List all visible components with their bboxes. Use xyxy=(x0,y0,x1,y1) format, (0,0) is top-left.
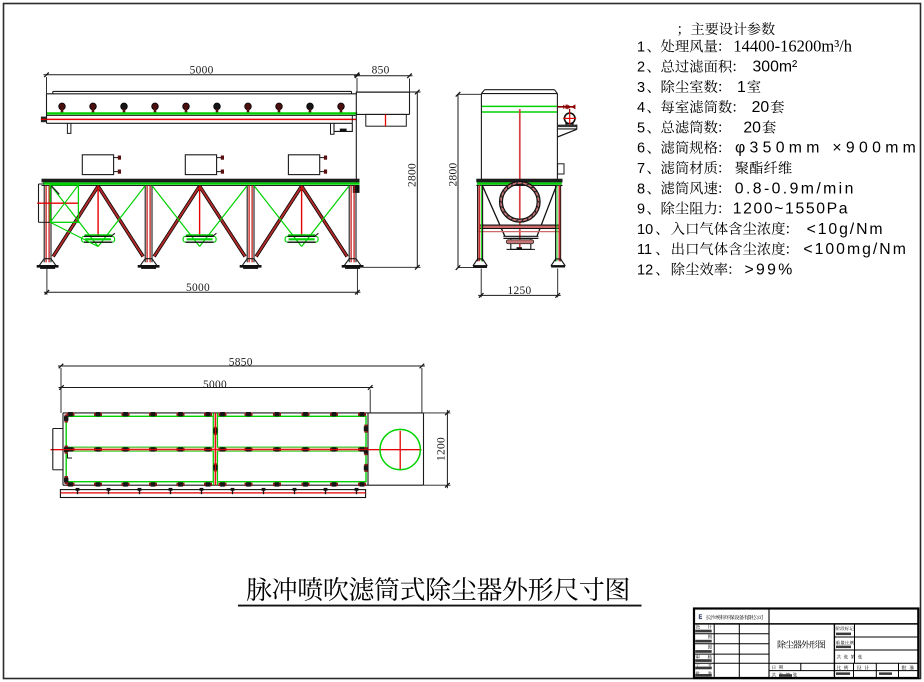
svg-text:<100mg/Nm: <100mg/Nm xyxy=(803,241,907,258)
svg-text:5000: 5000 xyxy=(190,65,214,77)
svg-text:20: 20 xyxy=(743,119,761,136)
svg-text:5000: 5000 xyxy=(186,282,210,294)
svg-text:6: 6 xyxy=(637,141,645,157)
svg-text:2: 2 xyxy=(637,60,645,76)
svg-text:3: 3 xyxy=(637,80,645,96)
svg-text:>99%: >99% xyxy=(745,261,795,278)
svg-text:1200: 1200 xyxy=(435,437,447,461)
svg-text:8: 8 xyxy=(637,181,645,197)
svg-text:φ350mm ×900mm: φ350mm ×900mm xyxy=(735,140,920,157)
svg-text:1: 1 xyxy=(737,79,746,96)
svg-text:5: 5 xyxy=(637,120,645,136)
svg-text:12: 12 xyxy=(637,262,653,278)
svg-text:1: 1 xyxy=(637,39,645,55)
svg-text:850: 850 xyxy=(372,64,390,76)
svg-text:7: 7 xyxy=(637,161,645,177)
svg-text:9: 9 xyxy=(637,202,645,218)
svg-text:11: 11 xyxy=(637,242,652,258)
svg-text:300m²: 300m² xyxy=(753,59,798,76)
svg-text:20: 20 xyxy=(752,99,770,116)
svg-text:4: 4 xyxy=(637,100,645,116)
svg-text:14400-16200m³/h: 14400-16200m³/h xyxy=(733,36,852,55)
svg-text:1200~1550Pa: 1200~1550Pa xyxy=(733,201,849,218)
svg-text:2800: 2800 xyxy=(406,163,418,187)
svg-text:5850: 5850 xyxy=(229,356,253,368)
svg-text:<10g/Nm: <10g/Nm xyxy=(807,221,885,238)
svg-text:1250: 1250 xyxy=(508,285,532,297)
svg-text:0.8-0.9m/min: 0.8-0.9m/min xyxy=(735,180,856,197)
svg-text:10: 10 xyxy=(637,222,653,238)
svg-text:5000: 5000 xyxy=(203,379,227,391)
svg-text:2800: 2800 xyxy=(448,163,460,187)
